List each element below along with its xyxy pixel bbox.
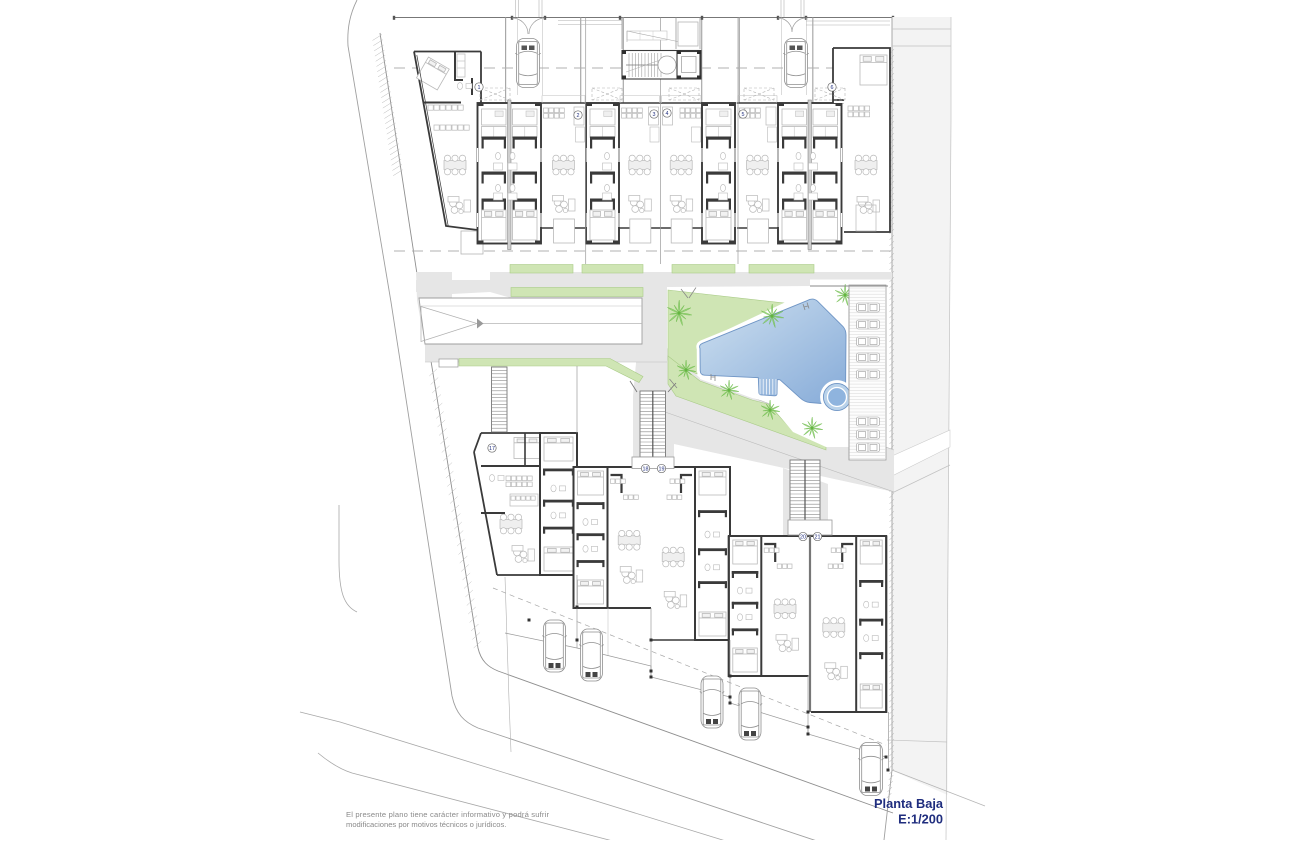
svg-text:Planta Baja: Planta Baja — [874, 796, 944, 811]
svg-text:19: 19 — [659, 466, 665, 472]
svg-text:modificaciones por motivos téc: modificaciones por motivos técnicos o ju… — [346, 820, 506, 829]
svg-text:2: 2 — [577, 113, 580, 119]
svg-text:17: 17 — [489, 446, 495, 452]
svg-text:20: 20 — [800, 534, 806, 540]
svg-text:E:1/200: E:1/200 — [898, 812, 943, 827]
svg-text:3: 3 — [653, 112, 656, 118]
svg-text:El presente plano tiene ca: El presente plano tiene carácter informa… — [346, 810, 549, 819]
svg-text:4: 4 — [666, 111, 669, 117]
svg-text:21: 21 — [815, 534, 821, 540]
svg-text:1: 1 — [478, 85, 481, 91]
svg-text:5: 5 — [742, 112, 745, 118]
svg-text:18: 18 — [643, 466, 649, 472]
svg-text:6: 6 — [831, 85, 834, 91]
